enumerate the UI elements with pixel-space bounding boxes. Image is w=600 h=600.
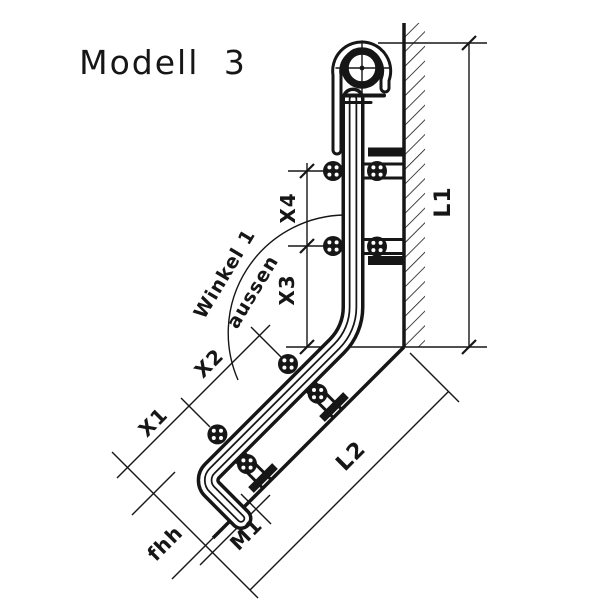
screw-icon [367, 161, 387, 181]
label-x2: X2 [189, 343, 228, 382]
screw-icon [308, 384, 328, 404]
handrail-drawing: Modell 3 L1 X4 X3 Winkel 1 aussen X2 X1 … [0, 0, 600, 600]
label-l1: L1 [431, 186, 456, 217]
screw-icon [367, 237, 387, 257]
label-fhh: fhh [142, 520, 187, 565]
slope-clamp2-extension [181, 398, 210, 427]
drawing-title: Modell 3 [79, 43, 247, 82]
screw-icon [278, 354, 298, 374]
wall [404, 23, 425, 347]
label-x4: X4 [276, 192, 300, 223]
wall-hatching [404, 23, 425, 347]
bracket-arms [237, 152, 404, 490]
screw-icon [323, 161, 343, 181]
drawing-labels: Modell 3 L1 X4 X3 Winkel 1 aussen X2 X1 … [79, 43, 456, 566]
label-l2: L2 [331, 436, 371, 476]
slope-clamp1-extension [251, 327, 281, 357]
dimension-lines [112, 43, 487, 598]
technical-drawing-page: Modell 3 L1 X4 X3 Winkel 1 aussen X2 X1 … [0, 0, 600, 600]
screw-icon [207, 424, 227, 444]
label-x1: X1 [133, 402, 172, 441]
dimension-line-l2 [250, 392, 449, 591]
label-x3: X3 [275, 274, 299, 305]
screw-icon [237, 454, 257, 474]
l2-upper-extension [410, 353, 459, 402]
screw-icon [323, 236, 343, 256]
